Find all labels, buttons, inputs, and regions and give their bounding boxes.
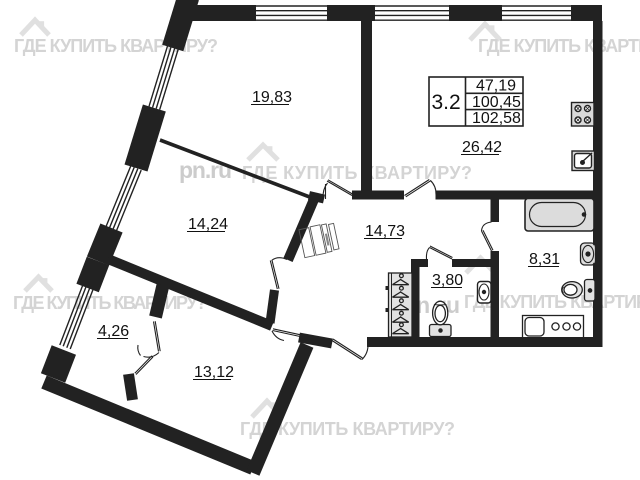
svg-text:100,45: 100,45 [472, 94, 521, 111]
svg-text:pn.ru: pn.ru [179, 157, 232, 183]
svg-text:14,73: 14,73 [365, 223, 405, 240]
svg-text:ГДЕ КУПИТЬ КВАРТИРУ?: ГДЕ КУПИТЬ КВАРТИРУ? [13, 293, 207, 313]
svg-text:ГДЕ КУПИТЬ КВАРТИРУ?: ГДЕ КУПИТЬ КВАРТИРУ? [478, 36, 640, 56]
svg-text:8,31: 8,31 [529, 251, 560, 268]
svg-text:26,42: 26,42 [462, 139, 502, 156]
svg-text:3,80: 3,80 [432, 272, 463, 289]
svg-text:102,58: 102,58 [472, 110, 521, 127]
svg-text:4,26: 4,26 [98, 323, 129, 340]
svg-text:ГДЕ КУПИТЬ КВАРТИРУ?: ГДЕ КУПИТЬ КВАРТИРУ? [14, 36, 218, 56]
svg-text:3.2: 3.2 [432, 91, 461, 114]
svg-text:47,19: 47,19 [476, 78, 516, 95]
svg-text:14,24: 14,24 [188, 216, 228, 233]
svg-text:19,83: 19,83 [252, 89, 292, 106]
svg-text:13,12: 13,12 [194, 364, 234, 381]
svg-text:ГДЕ КУПИТЬ КВАРТИРУ?: ГДЕ КУПИТЬ КВАРТИРУ? [242, 163, 472, 183]
